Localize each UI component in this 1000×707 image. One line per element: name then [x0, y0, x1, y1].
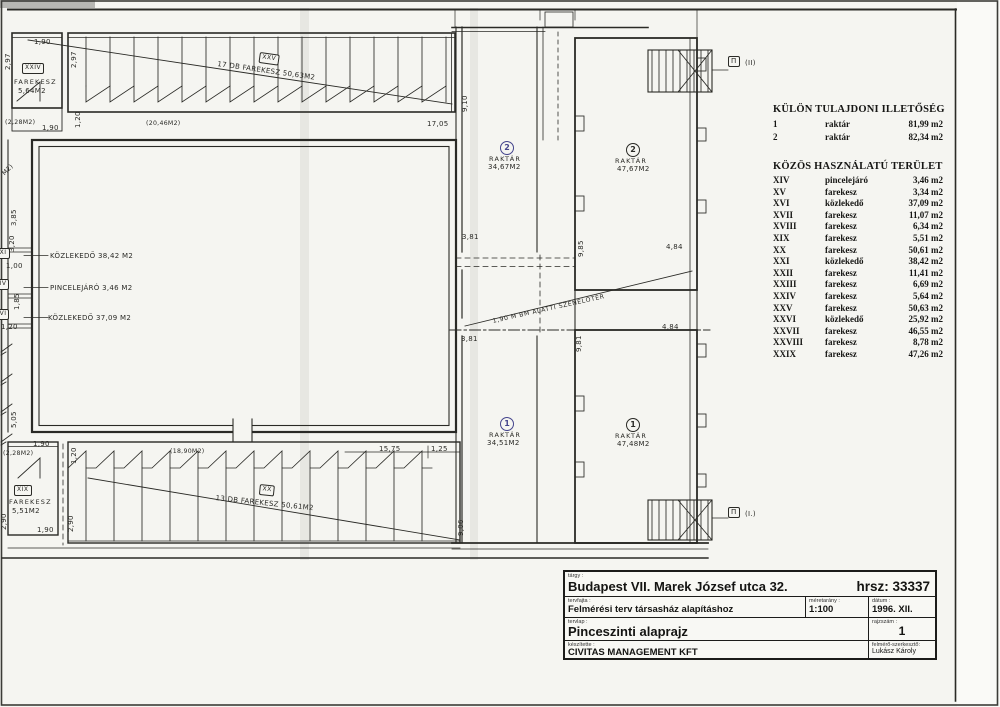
table-row: 1 raktár 81,99 m2 [773, 118, 943, 131]
dim-label: 15,75 [379, 445, 401, 453]
unit-number-circle: 1 [500, 417, 514, 431]
table-row: XV farekesz 3,34 m2 [773, 187, 943, 199]
area-note: (20,46M2) [146, 120, 181, 128]
scale-value: 1:100 [806, 604, 868, 616]
dim-label: 4,84 [666, 243, 683, 251]
unit-area: 50,63 m2 [885, 303, 943, 315]
scale-cell: méretarány : 1:100 [805, 597, 868, 617]
dim-label: 2,90 [0, 513, 8, 530]
dim-label: 17,05 [427, 120, 449, 128]
unit-type: farekesz [825, 233, 885, 245]
room-label: KÖZLEKEDŐ 37,09 M2 [48, 314, 131, 322]
dim-label: 1,90 [34, 38, 51, 46]
room-id-badge: XX [259, 484, 275, 496]
unit-area: 8,78 m2 [885, 337, 943, 349]
unit-type: farekesz [825, 210, 885, 222]
date-cell: dátum : 1996. XII. [868, 597, 935, 617]
unit-number-circle: 1 [626, 418, 640, 432]
dim-label: 9,10 [461, 95, 469, 112]
unit-number: XXIII [773, 279, 825, 291]
table-row: XVIII farekesz 6,34 m2 [773, 221, 943, 233]
table-row: XX farekesz 50,61 m2 [773, 245, 943, 257]
unit-type: raktár [825, 131, 885, 144]
unit-area: 50,61 m2 [885, 245, 943, 257]
unit-type: farekesz [825, 279, 885, 291]
dim-label: 1,20 [1, 323, 18, 331]
unit-type: farekesz [825, 291, 885, 303]
unit-number: XVIII [773, 221, 825, 233]
unit-type: farekesz [825, 349, 885, 361]
dim-label: 3,81 [461, 335, 478, 343]
sheet-title: Pinceszinti alaprajz [565, 625, 868, 639]
table-row: XXVII farekesz 46,55 m2 [773, 326, 943, 338]
unit-area: 11,41 m2 [885, 268, 943, 280]
room-area: 47,67M2 [617, 165, 650, 173]
unit-type: farekesz [825, 187, 885, 199]
private-ownership-table: KÜLÖN TULAJDONI ILLETŐSÉG 1 raktár 81,99… [773, 104, 943, 144]
unit-number: XVII [773, 210, 825, 222]
unit-type: közlekedő [825, 256, 885, 268]
drawing-number: 1 [869, 625, 935, 638]
dim-label: 4,84 [662, 323, 679, 331]
stair-number: (I.) [745, 510, 756, 518]
dim-label: 1,20 [70, 447, 78, 464]
unit-area: 5,51 m2 [885, 233, 943, 245]
room-name: RAKTÁR [615, 157, 647, 165]
title-block-author-row: készítette : CIVITAS MANAGEMENT KFT felm… [565, 641, 935, 658]
title-block-subject-row: tárgy : Budapest VII. Marek József utca … [565, 572, 935, 597]
room-label: KÖZLEKEDŐ 38,42 M2 [50, 252, 133, 260]
unit-area: 82,34 m2 [885, 131, 943, 144]
drawing-number-cell: rajzszám : 1 [868, 618, 935, 640]
dim-label: 3,81 [462, 233, 479, 241]
room-name: RAKTÁR [489, 155, 521, 163]
dim-label: 1,90 [33, 440, 50, 448]
unit-number: 1 [773, 118, 825, 131]
room-id-badge: XVI [0, 309, 9, 320]
dim-label: 1,25 [431, 445, 448, 453]
table-row: XXV farekesz 50,63 m2 [773, 303, 943, 315]
floor-plan-sheet: 2,97 1,90 2,97 1,20 (2,28M2) 1,90 (20,46… [0, 0, 1000, 707]
room-name: FAREKESZ [14, 78, 57, 86]
dim-label: 2,97 [70, 51, 78, 68]
field-label: tárgy : [565, 572, 935, 579]
unit-number-circle: 2 [500, 141, 514, 155]
field-label: méretarány : [806, 597, 868, 604]
unit-number: XXVIII [773, 337, 825, 349]
unit-number: XIX [773, 233, 825, 245]
plan-type: Felmérési terv társasház alapításhoz [565, 604, 805, 616]
table-row: XVII farekesz 11,07 m2 [773, 210, 943, 222]
stair-number: (II) [745, 59, 756, 67]
unit-area: 25,92 m2 [885, 314, 943, 326]
room-name: FAREKESZ [9, 498, 52, 506]
unit-number: XXII [773, 268, 825, 280]
dim-label: 9,85 [577, 240, 585, 257]
unit-area: 6,34 m2 [885, 221, 943, 233]
room-name: RAKTÁR [615, 432, 647, 440]
surveyor-cell: felmérő-szerkesztő: Lukász Károly [868, 641, 935, 658]
room-id-badge: XXIV [22, 63, 44, 74]
table-row: 2 raktár 82,34 m2 [773, 131, 943, 144]
title-block-sheet-row: tervlap : Pinceszinti alaprajz rajzszám … [565, 618, 935, 641]
author-cell: készítette : CIVITAS MANAGEMENT KFT [565, 641, 868, 658]
table-row: XXIX farekesz 47,26 m2 [773, 349, 943, 361]
unit-area: 3,46 m2 [885, 175, 943, 187]
unit-type: pincelejáró [825, 175, 885, 187]
field-label: felmérő-szerkesztő: [869, 641, 935, 648]
date-value: 1996. XII. [869, 604, 935, 616]
dim-label: 9,81 [575, 335, 583, 352]
table-row: XXVI közlekedő 25,92 m2 [773, 314, 943, 326]
unit-number: XXIV [773, 291, 825, 303]
surveyor-name: Lukász Károly [869, 648, 935, 656]
table-row: XVI közlekedő 37,09 m2 [773, 198, 943, 210]
dim-label: 1,90 [37, 526, 54, 534]
room-area: 5,51M2 [12, 507, 40, 515]
unit-type: farekesz [825, 245, 885, 257]
unit-number: 2 [773, 131, 825, 144]
unit-number: XVI [773, 198, 825, 210]
common-areas-table: KÖZÖS HASZNÁLATÚ TERÜLET XIV pincelejáró… [773, 161, 943, 361]
area-note: (2,28M2) [5, 119, 35, 127]
area-note: (2,28M2) [3, 450, 33, 458]
unit-area: 5,64 m2 [885, 291, 943, 303]
table-title: KÜLÖN TULAJDONI ILLETŐSÉG [773, 104, 943, 115]
stairs-upper-icon [648, 50, 728, 92]
table-row: XIX farekesz 5,51 m2 [773, 233, 943, 245]
room-id-badge: XXI [0, 248, 10, 259]
parcel-number: hrsz: 33337 [856, 579, 930, 594]
table-row: XXI közlekedő 38,42 m2 [773, 256, 943, 268]
room-id-badge: XIV [0, 279, 9, 290]
unit-type: közlekedő [825, 314, 885, 326]
table-row: XIV pincelejáró 3,46 m2 [773, 175, 943, 187]
unit-number: XXVII [773, 326, 825, 338]
table-row: XXII farekesz 11,41 m2 [773, 268, 943, 280]
room-area: 34,51M2 [487, 439, 520, 447]
unit-area: 37,09 m2 [885, 198, 943, 210]
dim-label: 3,85 [10, 209, 18, 226]
table-row: XXVIII farekesz 8,78 m2 [773, 337, 943, 349]
table-rows: XIV pincelejáró 3,46 m2 XV farekesz 3,34… [773, 175, 943, 361]
area-note: (18,90M2) [170, 448, 205, 456]
table-row: XXIV farekesz 5,64 m2 [773, 291, 943, 303]
unit-type: farekesz [825, 337, 885, 349]
unit-area: 6,69 m2 [885, 279, 943, 291]
title-block: tárgy : Budapest VII. Marek József utca … [563, 570, 937, 660]
unit-type: farekesz [825, 221, 885, 233]
area-tables: KÜLÖN TULAJDONI ILLETŐSÉG 1 raktár 81,99… [773, 104, 943, 361]
dim-label: 2,97 [4, 53, 12, 70]
room-area: 34,67M2 [488, 163, 521, 171]
unit-type: farekesz [825, 326, 885, 338]
unit-number: XX [773, 245, 825, 257]
table-row: XXIII farekesz 6,69 m2 [773, 279, 943, 291]
plan-type-cell: tervfajta : Felmérési terv társasház ala… [565, 597, 805, 617]
room-id-badge: XIX [14, 485, 32, 496]
unit-type: farekesz [825, 268, 885, 280]
unit-number: XXV [773, 303, 825, 315]
unit-number: XXVI [773, 314, 825, 326]
room-name: RAKTÁR [489, 431, 521, 439]
unit-type: közlekedő [825, 198, 885, 210]
stair-flag-badge: Π [728, 56, 740, 67]
unit-area: 38,42 m2 [885, 256, 943, 268]
unit-number: XV [773, 187, 825, 199]
field-label: tervfajta : [565, 597, 805, 604]
dim-label: 1,85 [13, 293, 21, 310]
unit-area: 47,26 m2 [885, 349, 943, 361]
unit-number: XXI [773, 256, 825, 268]
stairs-lower-icon [648, 500, 728, 540]
dim-label: 1,00 [6, 262, 23, 270]
room-area: 47,48M2 [617, 440, 650, 448]
unit-area: 46,55 m2 [885, 326, 943, 338]
dim-label: 1,20 [74, 111, 82, 128]
unit-number-circle: 2 [626, 143, 640, 157]
unit-area: 3,34 m2 [885, 187, 943, 199]
unit-area: 81,99 m2 [885, 118, 943, 131]
table-rows: 1 raktár 81,99 m2 2 raktár 82,34 m2 [773, 118, 943, 144]
room-label: PINCELEJÁRÓ 3,46 M2 [50, 284, 133, 292]
company-name: CIVITAS MANAGEMENT KFT [565, 648, 868, 658]
room-area: 5,64M2 [18, 87, 46, 95]
dim-label: 2,90 [67, 515, 75, 532]
dim-label: 9,06 [457, 519, 465, 536]
unit-number: XXIX [773, 349, 825, 361]
sheet-title-cell: tervlap : Pinceszinti alaprajz [565, 618, 868, 640]
table-title: KÖZÖS HASZNÁLATÚ TERÜLET [773, 161, 943, 172]
stair-flag-badge: Π [728, 507, 740, 518]
unit-area: 11,07 m2 [885, 210, 943, 222]
unit-type: raktár [825, 118, 885, 131]
dim-label: 5,05 [10, 411, 18, 428]
dim-label: 1,90 [42, 124, 59, 132]
unit-number: XIV [773, 175, 825, 187]
field-label: dátum : [869, 597, 935, 604]
unit-type: farekesz [825, 303, 885, 315]
title-block-plan-type-row: tervfajta : Felmérési terv társasház ala… [565, 597, 935, 618]
